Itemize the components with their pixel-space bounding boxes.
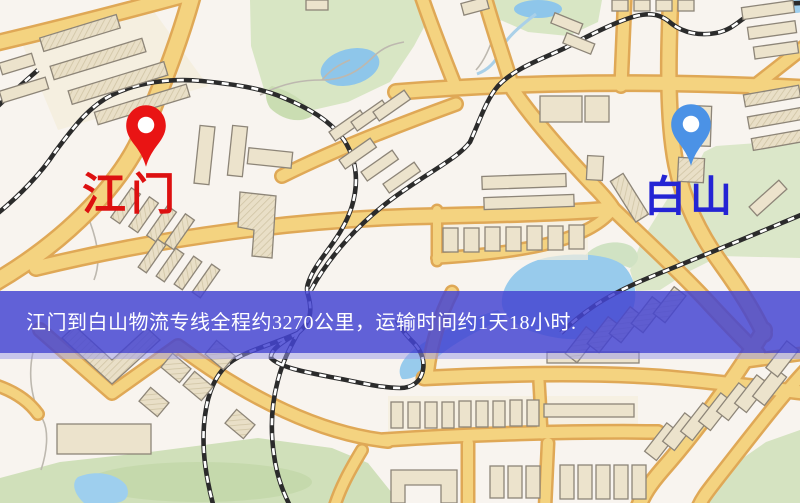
pin-icon <box>669 103 713 167</box>
destination-pin[interactable] <box>669 103 713 167</box>
info-banner-text: 江门到白山物流专线全程约3270公里，运输时间约1天18小时. <box>0 306 577 339</box>
origin-label: 江门 <box>82 173 180 217</box>
info-banner-edge <box>0 353 800 359</box>
origin-pin[interactable] <box>124 104 168 168</box>
map-container[interactable]: 江门 白山 江门到白山物流专线全程约3270公里，运输时间约1天18小时. <box>0 0 800 503</box>
info-banner: 江门到白山物流专线全程约3270公里，运输时间约1天18小时. <box>0 291 800 353</box>
destination-label: 白山 <box>644 177 736 219</box>
map-canvas <box>0 0 800 503</box>
pin-icon <box>124 104 168 168</box>
